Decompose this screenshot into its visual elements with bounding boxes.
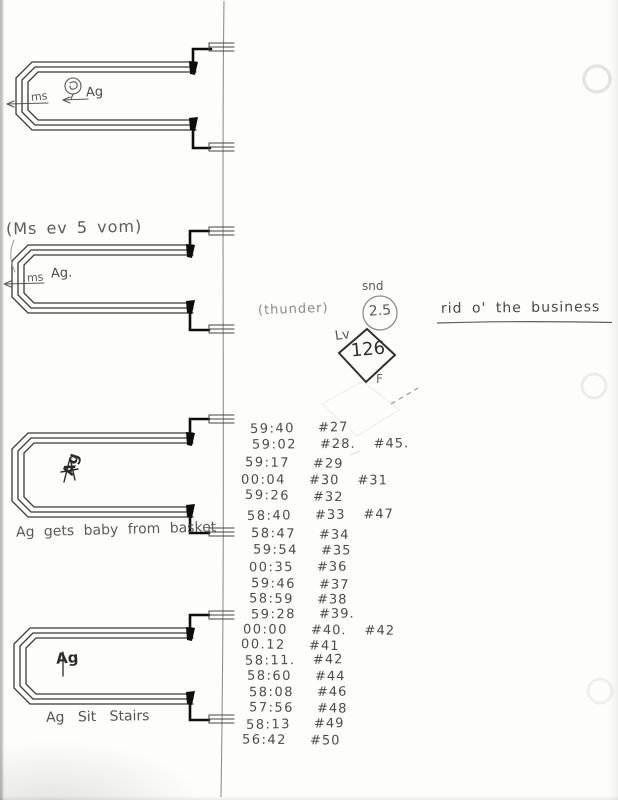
take-number: #32 xyxy=(313,489,344,505)
time-value: 59:40 xyxy=(250,421,306,437)
time-value: 59:26 xyxy=(245,488,301,504)
time-value: 58:13 xyxy=(246,717,302,733)
page-edge-right xyxy=(608,0,618,800)
take-number: #48 xyxy=(317,701,348,716)
scanned-page: ms Ag (Ms ev 5 vom) ms Ag. Ag gets baby … xyxy=(0,0,618,800)
take-number: #49 xyxy=(314,716,345,732)
time-value: 59:02 xyxy=(252,437,308,452)
take-number: #37 xyxy=(319,577,350,593)
timecode-row: 58:11.#42 xyxy=(245,652,344,669)
timecode-row: 59:46#37 xyxy=(251,576,350,593)
take-number: #42 xyxy=(365,623,396,638)
time-value: 00:00 xyxy=(243,622,299,637)
timecode-row: 57:56#48 xyxy=(249,700,348,716)
timecode-row: 00.12#41 xyxy=(241,637,340,654)
timecode-row: 59:26#32 xyxy=(245,488,344,505)
take-number: #44 xyxy=(315,669,346,684)
timecode-row: 58:13#49 xyxy=(246,716,345,733)
timecode-row: 58:47#34 xyxy=(251,526,350,543)
time-value: 58:40 xyxy=(247,508,303,524)
take-number: #36 xyxy=(317,560,348,575)
timecode-row: 58:59#38 xyxy=(249,591,348,607)
time-value: 00:35 xyxy=(249,560,305,575)
take-number: #34 xyxy=(319,527,350,543)
time-value: 56:42 xyxy=(242,732,298,748)
timecode-row: 58:60#44 xyxy=(247,669,346,685)
timecode-row: 59:02#28.#45. xyxy=(252,436,409,452)
timecode-row: 58:08#46 xyxy=(249,685,348,701)
take-number: #46 xyxy=(317,685,348,700)
take-number: #27 xyxy=(318,420,349,436)
timecode-row: 00:00#40.#42 xyxy=(243,622,395,638)
time-value: 58:11. xyxy=(245,653,301,669)
take-number: #38 xyxy=(317,592,348,607)
time-value: 59:46 xyxy=(251,576,307,592)
timecode-row: 59:28#39. xyxy=(251,607,355,623)
time-value: 57:56 xyxy=(249,700,305,716)
time-value: 00:04 xyxy=(241,473,297,488)
take-number: #29 xyxy=(313,456,344,472)
take-number: #30 xyxy=(309,473,340,488)
time-value: 59:54 xyxy=(253,542,309,558)
page-edge-left xyxy=(0,0,5,800)
take-number: #31 xyxy=(357,473,388,488)
take-number: #40. xyxy=(311,623,347,638)
time-value: 59:17 xyxy=(245,455,301,471)
time-value: 59:28 xyxy=(251,607,307,622)
time-value: 58:60 xyxy=(247,669,303,684)
take-number: #50 xyxy=(310,733,341,748)
scan-shadow-bottom-left xyxy=(0,738,210,800)
take-number: #47 xyxy=(363,507,394,522)
timecode-row: 00:04#30#31 xyxy=(241,473,388,489)
take-number: #39. xyxy=(319,607,355,622)
timecode-row: 59:17#29 xyxy=(245,455,344,472)
take-number: #33 xyxy=(315,508,346,523)
time-value: 58:47 xyxy=(251,526,307,542)
timecode-row: 56:42#50 xyxy=(242,732,341,748)
time-value: 58:59 xyxy=(249,591,305,607)
time-value: 58:08 xyxy=(249,685,305,700)
timecode-row: 59:40#27 xyxy=(250,420,349,437)
timecode-column: 59:40#2759:02#28.#45.59:17#2900:04#30#31… xyxy=(0,0,618,800)
timecode-row: 58:40#33#47 xyxy=(247,507,394,524)
take-number: #45. xyxy=(374,436,410,451)
timecode-row: 00:35#36 xyxy=(249,560,348,576)
take-number: #28. xyxy=(320,437,356,452)
timecode-row: 59:54#35 xyxy=(253,542,352,558)
time-value: 00.12 xyxy=(241,637,297,653)
take-number: #42 xyxy=(313,652,344,667)
take-number: #35 xyxy=(321,543,352,558)
